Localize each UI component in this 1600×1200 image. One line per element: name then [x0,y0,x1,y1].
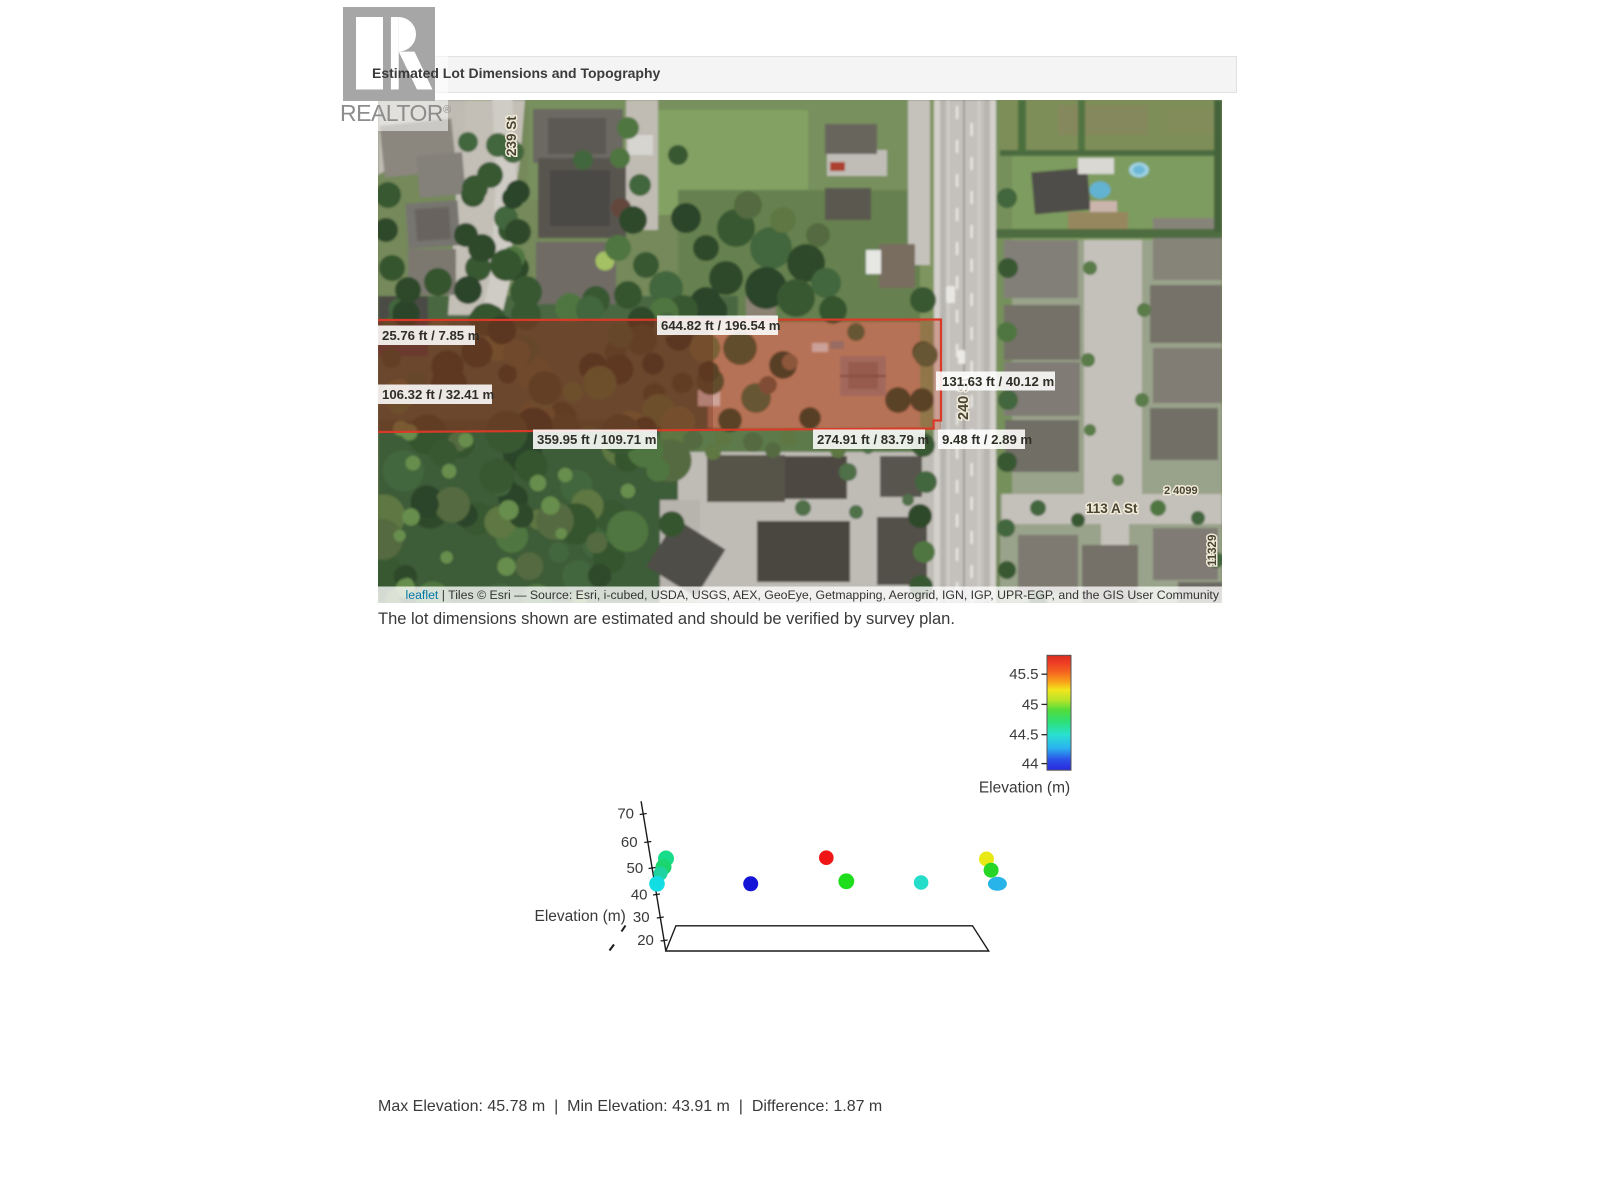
svg-text:Elevation (m): Elevation (m) [535,908,626,925]
svg-text:45: 45 [1022,696,1039,713]
svg-text:50: 50 [627,860,644,877]
svg-text:60: 60 [621,834,638,851]
svg-text:leaflet | Tiles © Esri — Sourc: leaflet | Tiles © Esri — Source: Esri, i… [406,588,1220,602]
svg-text:44: 44 [1022,756,1039,773]
svg-text:11329: 11329 [1207,535,1219,566]
svg-text:9.48 ft / 2.89 m: 9.48 ft / 2.89 m [942,432,1032,447]
svg-text:45.5: 45.5 [1009,666,1038,683]
svg-text:44.5: 44.5 [1009,727,1038,744]
svg-text:20: 20 [637,932,654,949]
svg-text:70: 70 [617,806,634,823]
svg-text:644.82 ft / 196.54 m: 644.82 ft / 196.54 m [661,318,781,333]
svg-text:239 St: 239 St [504,116,519,156]
svg-text:25.76 ft / 7.85 m: 25.76 ft / 7.85 m [382,328,480,343]
svg-text:30: 30 [633,909,650,926]
svg-text:Elevation (m): Elevation (m) [979,780,1070,797]
svg-text:131.63 ft / 40.12 m: 131.63 ft / 40.12 m [942,374,1054,389]
svg-text:2 4099: 2 4099 [1164,485,1198,497]
svg-text:274.91 ft / 83.79 m: 274.91 ft / 83.79 m [817,432,929,447]
svg-text:40: 40 [631,886,648,903]
svg-text:106.32 ft / 32.41 m: 106.32 ft / 32.41 m [382,387,494,402]
svg-text:113 A St: 113 A St [1086,501,1138,516]
svg-text:359.95 ft / 109.71 m: 359.95 ft / 109.71 m [537,432,657,447]
